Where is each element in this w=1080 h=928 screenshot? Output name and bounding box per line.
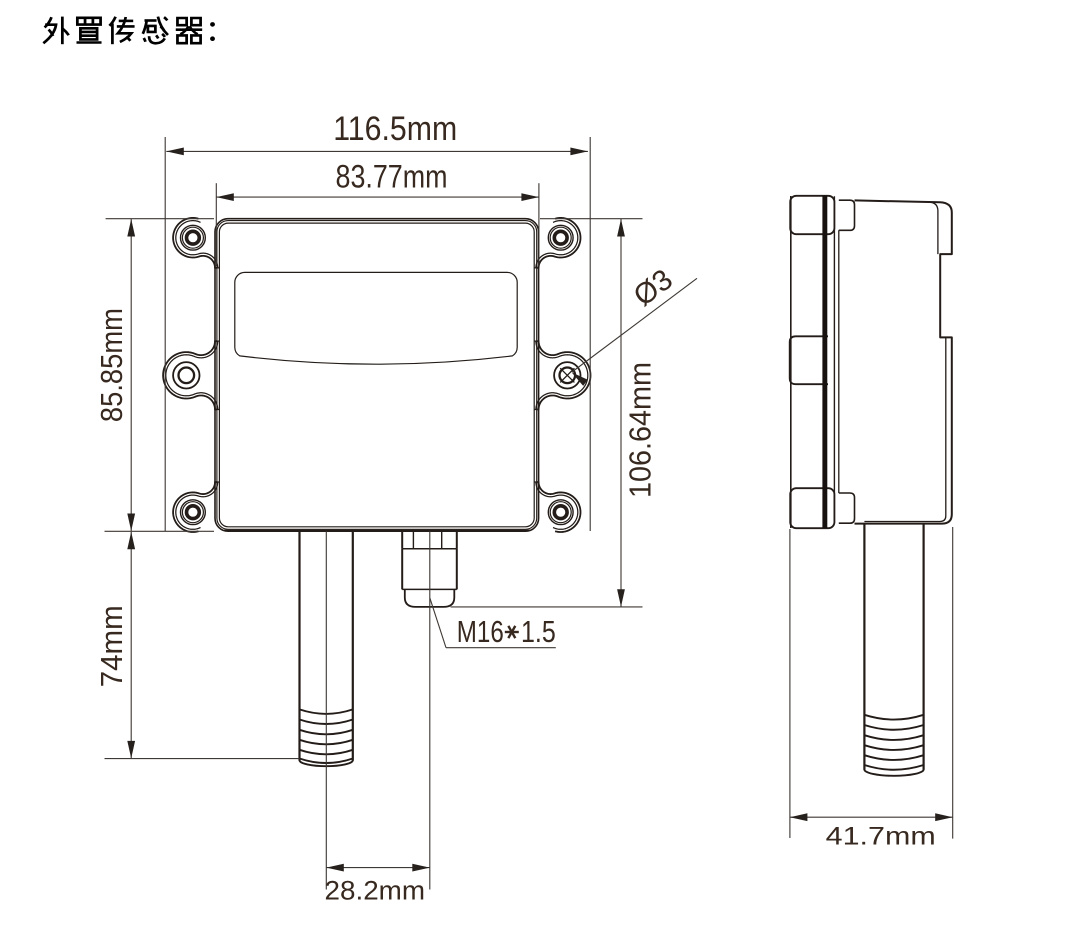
svg-text:106.64mm: 106.64mm	[622, 362, 657, 498]
svg-text:83.77mm: 83.77mm	[336, 159, 448, 195]
svg-text:1.5: 1.5	[521, 614, 556, 649]
svg-text:74mm: 74mm	[94, 605, 129, 687]
svg-text:M16: M16	[457, 614, 504, 649]
svg-text:41.7mm: 41.7mm	[826, 822, 936, 850]
svg-text:116.5mm: 116.5mm	[333, 110, 457, 148]
svg-text:Ø3: Ø3	[628, 263, 679, 313]
svg-text:85.85mm: 85.85mm	[94, 308, 129, 422]
svg-text:28.2mm: 28.2mm	[325, 875, 426, 905]
